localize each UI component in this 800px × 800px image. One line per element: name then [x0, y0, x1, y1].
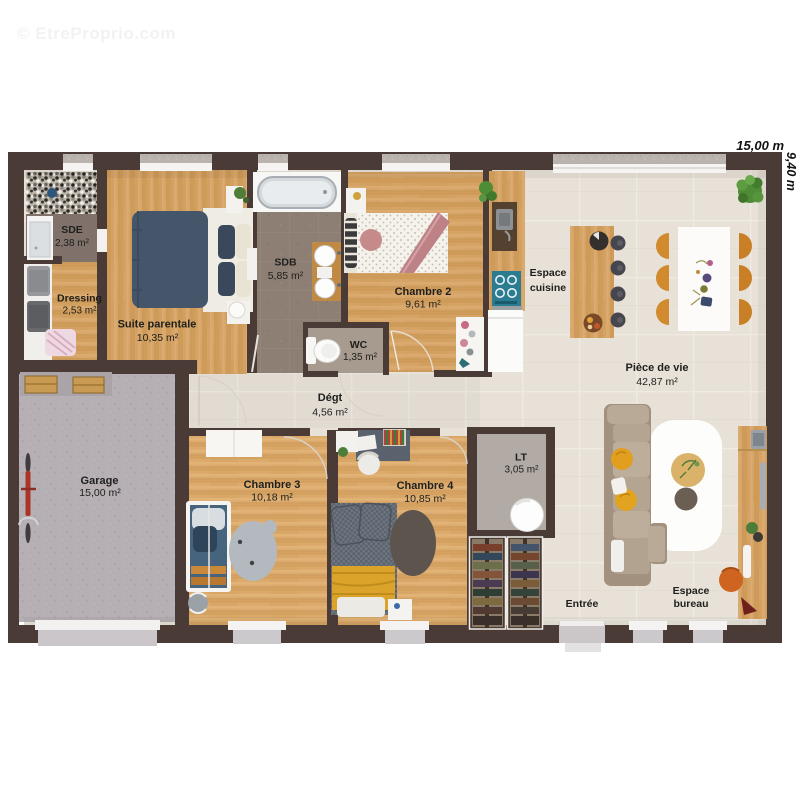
svg-text:Garage: Garage — [81, 475, 119, 487]
svg-text:2,53 m²: 2,53 m² — [63, 306, 98, 317]
svg-text:9,40 m: 9,40 m — [784, 152, 798, 191]
svg-text:10,18 m²: 10,18 m² — [251, 492, 293, 504]
svg-text:bureau: bureau — [673, 598, 708, 610]
svg-text:1,35 m²: 1,35 m² — [343, 352, 378, 363]
svg-text:WC: WC — [350, 339, 368, 351]
svg-text:SDB: SDB — [274, 257, 297, 269]
svg-text:Pièce de vie: Pièce de vie — [626, 362, 689, 374]
svg-text:SDE: SDE — [61, 224, 83, 236]
svg-text:15,00 m²: 15,00 m² — [79, 487, 121, 499]
svg-text:LT: LT — [515, 452, 528, 464]
svg-text:42,87 m²: 42,87 m² — [636, 376, 678, 388]
svg-text:Chambre 3: Chambre 3 — [244, 479, 301, 491]
svg-text:cuisine: cuisine — [530, 282, 566, 294]
svg-text:Chambre 4: Chambre 4 — [397, 480, 455, 492]
svg-text:5,85 m²: 5,85 m² — [268, 270, 304, 282]
svg-text:© EtreProprio.com: © EtreProprio.com — [17, 24, 176, 43]
svg-text:10,35 m²: 10,35 m² — [137, 332, 179, 344]
svg-text:10,85 m²: 10,85 m² — [404, 493, 446, 505]
svg-text:15,00 m: 15,00 m — [736, 138, 784, 153]
svg-text:2,38 m²: 2,38 m² — [55, 238, 90, 249]
svg-text:Chambre 2: Chambre 2 — [395, 286, 452, 298]
svg-text:Dressing: Dressing — [57, 293, 102, 305]
svg-text:Espace: Espace — [673, 585, 710, 597]
svg-text:Entrée: Entrée — [566, 598, 599, 610]
svg-text:Espace: Espace — [530, 267, 567, 279]
svg-text:3,05 m²: 3,05 m² — [505, 465, 540, 476]
svg-text:Dégt: Dégt — [318, 392, 343, 404]
svg-text:9,61 m²: 9,61 m² — [405, 299, 441, 311]
svg-text:4,56 m²: 4,56 m² — [312, 407, 348, 419]
svg-text:Suite parentale: Suite parentale — [118, 319, 197, 331]
